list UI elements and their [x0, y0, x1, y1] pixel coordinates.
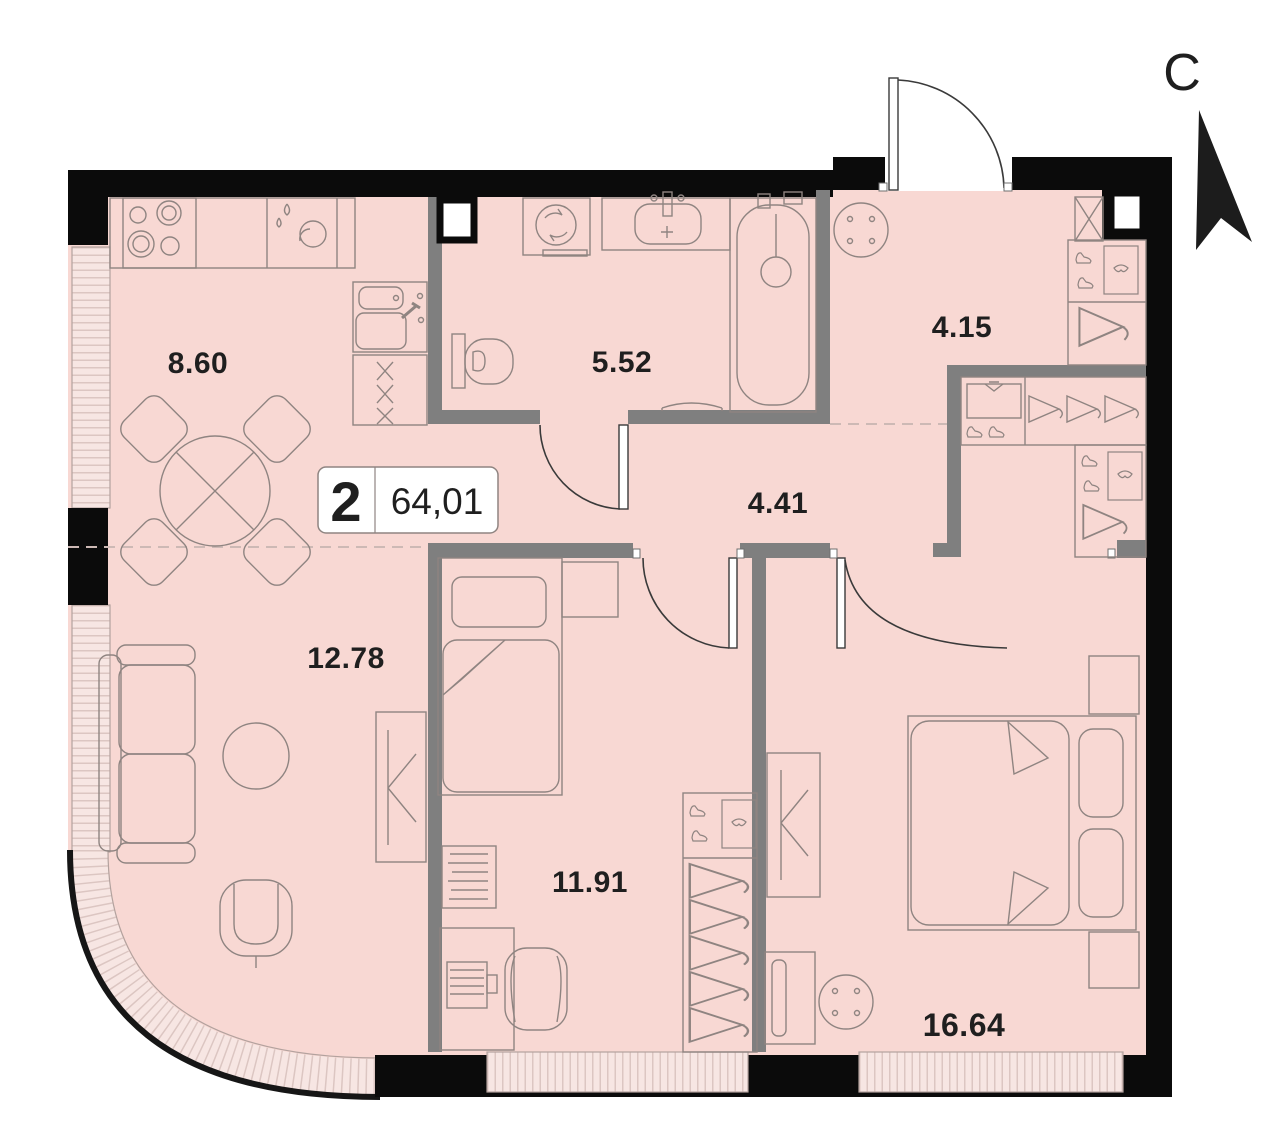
wall-top-entry-left — [833, 157, 885, 190]
room-label-master: 16.64 — [923, 1007, 1006, 1043]
floor-area — [68, 157, 1172, 1097]
wall-pier-left-top — [68, 170, 108, 245]
room-label-bathroom: 5.52 — [592, 346, 652, 379]
wall-top — [68, 170, 833, 197]
wall-right — [1146, 157, 1172, 1097]
wall-pier-left-mid — [68, 508, 108, 605]
badge-rooms-count: 2 — [330, 470, 361, 533]
window-left-upper — [72, 247, 110, 508]
wall-hall-closet — [947, 365, 1146, 377]
wall-corridor-bottom-left — [428, 543, 633, 558]
duct-bathroom — [440, 200, 474, 240]
wall-bathroom-right — [816, 190, 830, 424]
room-label-bedroom: 11.91 — [552, 866, 628, 899]
wall-corridor-right — [947, 365, 961, 557]
niche-entry — [1111, 193, 1143, 232]
room-label-corridor: 4.41 — [748, 487, 808, 520]
window-left-lower — [72, 605, 110, 852]
wall-master-door-stub — [1117, 540, 1146, 558]
wall-corridor-bottom-stub — [740, 543, 830, 558]
apartment-badge: 2 64,01 — [318, 467, 498, 533]
entry-door — [879, 78, 1012, 191]
room-label-hall: 4.15 — [932, 311, 992, 344]
north-arrow-icon — [1196, 110, 1252, 250]
room-label-living: 12.78 — [307, 642, 385, 675]
window-bottom-left — [487, 1052, 748, 1092]
badge-total-area: 64,01 — [391, 481, 484, 522]
wall-bathroom-bottom-left — [428, 410, 540, 424]
wall-corridor-foot — [933, 543, 961, 557]
wall-bedrooms-divider — [752, 558, 766, 1052]
floor-plan: 8.60 5.52 4.15 4.41 12.78 11.91 16.64 2 … — [0, 0, 1280, 1131]
north-letter: С — [1163, 44, 1201, 102]
north-indicator: С — [1163, 44, 1252, 250]
window-bottom-right — [859, 1052, 1123, 1092]
floor-plan-page: 8.60 5.52 4.15 4.41 12.78 11.91 16.64 2 … — [0, 0, 1280, 1131]
room-label-kitchen: 8.60 — [168, 347, 228, 380]
